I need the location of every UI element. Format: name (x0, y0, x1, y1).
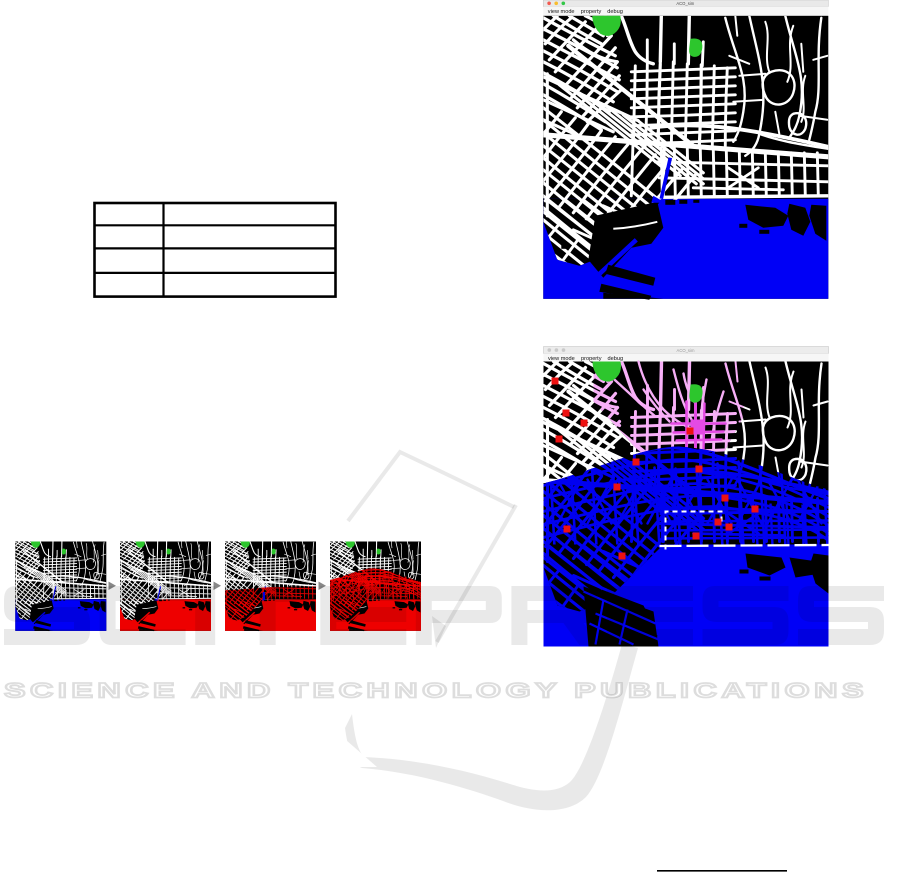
svg-text:property: property (581, 356, 602, 362)
svg-text:view mode: view mode (548, 356, 575, 362)
svg-text:SCIENCE AND TECHNOLOGY PUBLICA: SCIENCE AND TECHNOLOGY PUBLICATIONS (4, 679, 868, 703)
svg-text:debug: debug (608, 356, 624, 362)
svg-text:ACO_sim: ACO_sim (677, 348, 695, 353)
svg-text:ACO_sim: ACO_sim (676, 1, 694, 6)
svg-text:property: property (581, 9, 602, 15)
svg-text:view mode: view mode (548, 9, 575, 15)
svg-text:debug: debug (607, 9, 623, 15)
